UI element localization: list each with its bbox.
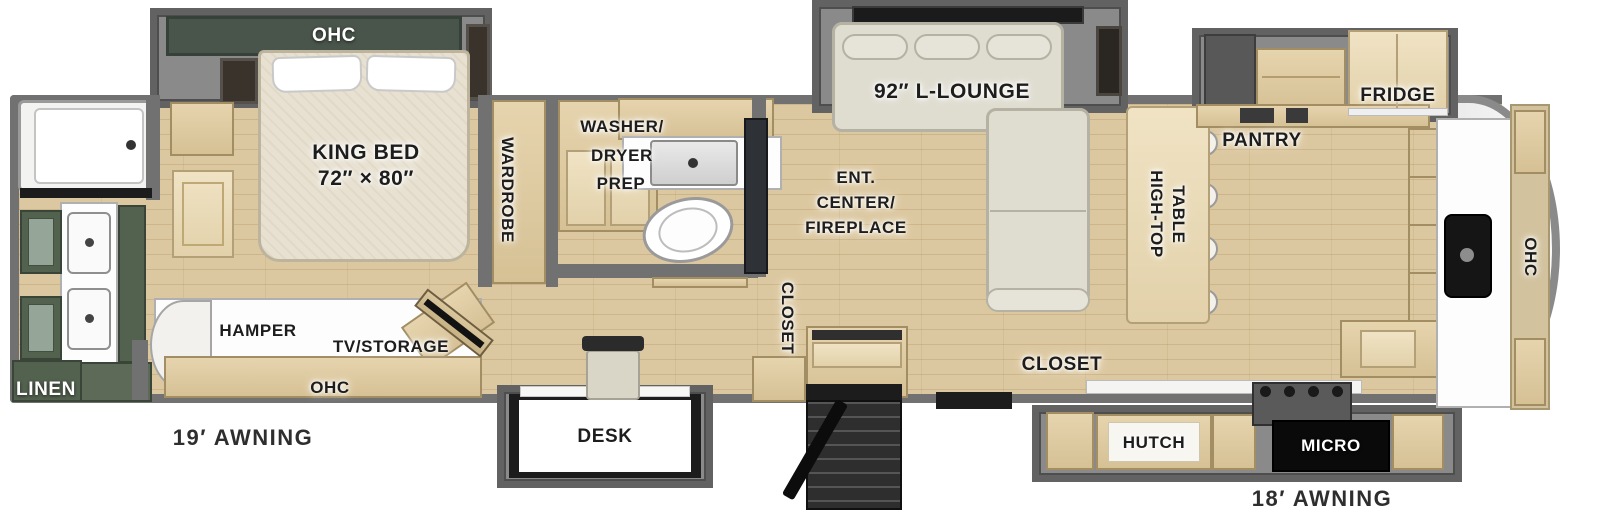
stove-burner xyxy=(1284,386,1295,397)
stove-burner xyxy=(1260,386,1271,397)
bedroom-ohc-label: OHC xyxy=(312,25,356,47)
entry-closet-label: CLOSET xyxy=(777,282,797,355)
mid-cabinet xyxy=(1212,414,1256,470)
king-bed-size-label: 72″ × 80″ xyxy=(318,167,414,191)
fridge-vent xyxy=(1348,108,1448,116)
mirror-glass xyxy=(28,304,54,352)
bath-bedroom-wall xyxy=(146,95,160,200)
stove-burner xyxy=(1332,386,1343,397)
wardrobe-wall xyxy=(478,95,492,287)
ent-center-label-1: ENT. xyxy=(836,168,875,188)
hamper-label: HAMPER xyxy=(219,321,296,341)
sofa-chaise-section xyxy=(986,108,1090,304)
washer-dryer-label-2: DRYER xyxy=(591,146,653,166)
counter-recess xyxy=(936,392,1012,409)
lounge-side-window xyxy=(1096,26,1122,96)
desk-chair-back xyxy=(582,336,644,351)
bath-lower-wall xyxy=(132,340,148,400)
rear-ohc-label: OHC xyxy=(1520,237,1540,277)
ohc-left-label: OHC xyxy=(310,378,350,398)
shower-glass xyxy=(20,188,152,198)
fireplace-ent-unit xyxy=(744,118,768,274)
pantry-cabinet xyxy=(1256,48,1346,112)
pantry-label: PANTRY xyxy=(1222,130,1302,152)
rear-ohc-upper-block xyxy=(1514,110,1546,174)
washer-dryer-label-3: PREP xyxy=(597,174,646,194)
high-top-table-label: HIGH-TOP TABLE xyxy=(1145,170,1189,258)
desk-label: DESK xyxy=(577,426,632,448)
nightstand xyxy=(170,102,234,156)
rear-sink-faucet xyxy=(1460,248,1474,262)
ent-center-label-2: CENTER/ xyxy=(817,193,896,213)
bed-pillow xyxy=(366,55,457,93)
hutch-label: HUTCH xyxy=(1123,433,1186,453)
entry-stairs xyxy=(806,400,902,510)
stove-burner xyxy=(1308,386,1319,397)
king-bed-label: KING BED xyxy=(312,141,419,165)
right-end-cabinet xyxy=(1392,414,1444,470)
bed-pillow xyxy=(272,55,363,93)
rear-ohc-lower-block xyxy=(1514,338,1546,406)
desk-chair-seat xyxy=(586,350,640,400)
entry-cabinet xyxy=(752,356,806,402)
bedroom-window xyxy=(220,58,258,104)
sofa-chaise-seam xyxy=(990,210,1086,212)
high-top-label-line: HIGH-TOP xyxy=(1145,170,1167,258)
awning-left-label: 19′ AWNING xyxy=(173,425,313,451)
tv-storage-label: TV/STORAGE xyxy=(333,337,449,357)
ent-center-label-3: FIREPLACE xyxy=(805,218,907,238)
fridge-label: FRIDGE xyxy=(1360,85,1435,107)
high-top-label-line: TABLE xyxy=(1167,170,1189,258)
counter-inset xyxy=(1240,108,1274,123)
micro-label: MICRO xyxy=(1301,436,1361,456)
lounge-label: 92″ L-LOUNGE xyxy=(874,80,1030,104)
washer-dryer-label-1: WASHER/ xyxy=(580,117,664,137)
bath-partition-wall xyxy=(546,264,758,278)
mirror-glass xyxy=(28,218,54,266)
entry-chest-top xyxy=(812,330,902,340)
wardrobe-label: WARDROBE xyxy=(497,137,517,243)
wardrobe-wall xyxy=(546,95,558,287)
slide-end-cabinet xyxy=(1046,412,1094,470)
sink-faucet xyxy=(85,314,94,323)
pantry-shelf-line xyxy=(1262,76,1340,78)
sink-faucet xyxy=(85,238,94,247)
pantry-tall-cabinet xyxy=(1204,34,1256,106)
corner-cabinet-drawer xyxy=(1360,330,1416,368)
bath-sink-faucet xyxy=(688,158,698,168)
rv-floorplan-canvas: OHC KING BED 72″ × 80″ WARDROBE WASHER/ … xyxy=(0,0,1600,513)
bath-door-open xyxy=(652,277,748,288)
sofa-headrest xyxy=(914,34,980,60)
sofa-headrest xyxy=(986,34,1052,60)
counter-inset xyxy=(1286,108,1308,123)
kitchen-closet-label: CLOSET xyxy=(1022,354,1103,376)
shower-drain xyxy=(126,140,136,150)
sofa-arm xyxy=(986,288,1090,312)
sofa-headrest xyxy=(842,34,908,60)
linen-label: LINEN xyxy=(16,379,76,401)
awning-right-label: 18′ AWNING xyxy=(1252,486,1392,512)
bath-door-panel xyxy=(182,182,224,246)
entry-chest-lid xyxy=(812,342,902,368)
